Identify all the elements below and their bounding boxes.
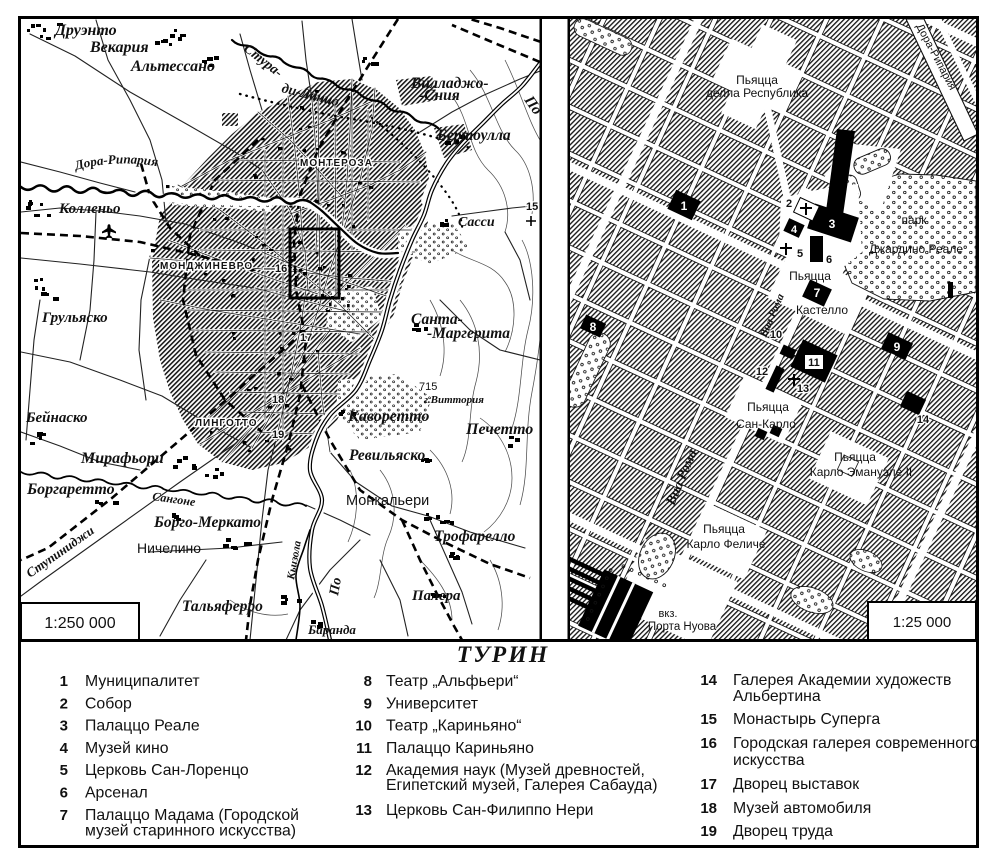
- svg-text:Галерея Академии художеств: Галерея Академии художеств: [733, 672, 951, 689]
- svg-text:7: 7: [814, 286, 821, 300]
- svg-text:Сасси: Сасси: [458, 215, 495, 230]
- svg-text:ТУРИН: ТУРИН: [457, 642, 550, 668]
- svg-text:Колленьо: Колленьо: [58, 201, 120, 217]
- svg-text:7: 7: [60, 807, 68, 824]
- svg-text:Театр „Кариньяно“: Театр „Кариньяно“: [386, 718, 522, 735]
- svg-text:18: 18: [272, 394, 284, 406]
- svg-text:14: 14: [700, 672, 717, 689]
- svg-text:Палаццо Кариньяно: Палаццо Кариньяно: [386, 740, 534, 757]
- svg-text:1: 1: [681, 199, 688, 213]
- svg-text:15: 15: [526, 201, 538, 213]
- svg-text:Друэнто: Друэнто: [53, 22, 117, 39]
- svg-text:Борго-Меркато: Борго-Меркато: [153, 514, 261, 531]
- svg-text:19: 19: [700, 823, 717, 840]
- svg-text:16: 16: [700, 735, 717, 752]
- svg-text:5: 5: [797, 248, 803, 260]
- svg-text:Боргаретто: Боргаретто: [26, 481, 115, 498]
- svg-text:Карло Феличе: Карло Феличе: [686, 537, 765, 551]
- svg-text:13: 13: [355, 802, 372, 819]
- svg-text:11: 11: [356, 740, 372, 757]
- svg-text:8: 8: [364, 673, 372, 690]
- svg-text:2: 2: [786, 198, 792, 210]
- svg-text:Музей автомобиля: Музей автомобиля: [733, 800, 871, 817]
- svg-text:1:250 000: 1:250 000: [44, 615, 115, 632]
- svg-text:4: 4: [791, 224, 798, 236]
- svg-text:17: 17: [300, 332, 312, 344]
- svg-text:Карло Эмануэле II: Карло Эмануэле II: [810, 465, 913, 479]
- svg-text:Палаццо Мадама (Городской: Палаццо Мадама (Городской: [85, 807, 299, 824]
- svg-text:17: 17: [700, 776, 717, 793]
- svg-text:Сан-Карло: Сан-Карло: [736, 417, 796, 431]
- svg-text:Ничелино: Ничелино: [137, 540, 201, 556]
- svg-text:Палера: Палера: [411, 588, 461, 604]
- svg-text:Университет: Университет: [386, 695, 478, 712]
- svg-text:Трофарелло: Трофарелло: [434, 528, 516, 545]
- svg-text:Пьяцца: Пьяцца: [834, 450, 876, 464]
- svg-text:Муниципалитет: Муниципалитет: [85, 673, 200, 690]
- svg-text:делла Республика: делла Республика: [706, 86, 809, 100]
- svg-text:Порта Нуова: Порта Нуова: [648, 621, 717, 633]
- svg-text:Векария: Векария: [89, 39, 149, 56]
- svg-text:4: 4: [60, 740, 69, 757]
- svg-text:3: 3: [829, 217, 836, 231]
- svg-text:14: 14: [917, 414, 930, 426]
- svg-text:-Маргерита: -Маргерита: [427, 325, 510, 342]
- svg-text:18: 18: [700, 800, 717, 817]
- svg-text:Городская галерея современного: Городская галерея современного: [733, 735, 978, 752]
- svg-text:Пьяцца: Пьяцца: [736, 73, 778, 87]
- svg-text:г.Виттория: г.Виттория: [424, 394, 484, 406]
- svg-text:Пьяцца: Пьяцца: [703, 522, 745, 536]
- svg-text:Кастелло: Кастелло: [796, 303, 848, 317]
- svg-text:парк: парк: [901, 213, 927, 227]
- svg-text:715: 715: [419, 381, 437, 393]
- svg-text:Монастырь Суперга: Монастырь Суперга: [733, 711, 880, 728]
- svg-text:15: 15: [700, 711, 717, 728]
- svg-text:Египетский музей, Галерея Саба: Египетский музей, Галерея Сабауда): [386, 777, 658, 794]
- svg-text:6: 6: [826, 254, 832, 266]
- svg-text:5: 5: [60, 762, 68, 779]
- svg-text:Собор: Собор: [85, 695, 132, 712]
- svg-text:Альбертина: Альбертина: [733, 688, 821, 705]
- svg-text:-Сния: -Сния: [419, 87, 460, 104]
- svg-text:Церковь Сан-Филиппо Нери: Церковь Сан-Филиппо Нери: [386, 802, 593, 819]
- svg-text:1:25 000: 1:25 000: [893, 614, 951, 631]
- svg-text:12: 12: [355, 762, 372, 779]
- svg-text:Дворец выставок: Дворец выставок: [733, 776, 859, 793]
- svg-text:Театр „Альфьери“: Театр „Альфьери“: [386, 673, 519, 690]
- svg-text:искусства: искусства: [733, 752, 805, 769]
- svg-text:6: 6: [60, 785, 68, 802]
- svg-text:Тальяферро: Тальяферро: [182, 598, 263, 615]
- svg-text:10: 10: [355, 718, 372, 735]
- svg-text:Печетто: Печетто: [465, 421, 533, 438]
- svg-text:МОНТЕРОЗА: МОНТЕРОЗА: [300, 158, 373, 169]
- svg-text:—16: —16: [264, 263, 287, 275]
- svg-text:Каворетто: Каворетто: [347, 408, 429, 425]
- svg-text:Пьяцца: Пьяцца: [789, 269, 831, 283]
- svg-text:вкз.: вкз.: [659, 608, 678, 620]
- svg-text:19: 19: [272, 429, 284, 441]
- svg-text:1: 1: [60, 673, 68, 690]
- svg-text:11: 11: [808, 357, 820, 369]
- svg-text:Палаццо Реале: Палаццо Реале: [85, 718, 200, 735]
- svg-text:Мирафьори: Мирафьори: [80, 450, 164, 467]
- svg-text:Баранда: Баранда: [307, 622, 356, 637]
- svg-text:Альтессано: Альтессано: [130, 58, 215, 75]
- svg-text:Арсенал: Арсенал: [85, 785, 148, 802]
- svg-text:3: 3: [60, 718, 68, 735]
- svg-text:Ревильяско: Ревильяско: [349, 447, 426, 464]
- svg-text:9: 9: [894, 340, 901, 354]
- svg-text:Джардино Реале: Джардино Реале: [869, 242, 963, 256]
- svg-text:Монкальери: Монкальери: [346, 493, 429, 509]
- svg-text:Бейнаско: Бейнаско: [25, 410, 88, 426]
- svg-text:Церковь Сан-Лоренцо: Церковь Сан-Лоренцо: [85, 762, 249, 779]
- svg-text:13: 13: [797, 383, 809, 395]
- svg-text:МОНДЖИНЕВРО: МОНДЖИНЕВРО: [160, 261, 253, 272]
- svg-text:8: 8: [590, 320, 597, 334]
- svg-text:Дворец труда: Дворец труда: [733, 823, 833, 840]
- svg-text:Бертоулла: Бертоулла: [436, 127, 511, 144]
- svg-text:Грульяско: Грульяско: [41, 310, 108, 326]
- svg-text:2: 2: [60, 695, 68, 712]
- svg-text:музей старинного искусства): музей старинного искусства): [85, 822, 296, 839]
- svg-text:12: 12: [756, 366, 768, 378]
- svg-text:9: 9: [364, 695, 372, 712]
- svg-text:Музей кино: Музей кино: [85, 740, 169, 757]
- svg-text:ЛИНГОТТО: ЛИНГОТТО: [195, 418, 258, 429]
- svg-text:Пьяцца: Пьяцца: [747, 400, 789, 414]
